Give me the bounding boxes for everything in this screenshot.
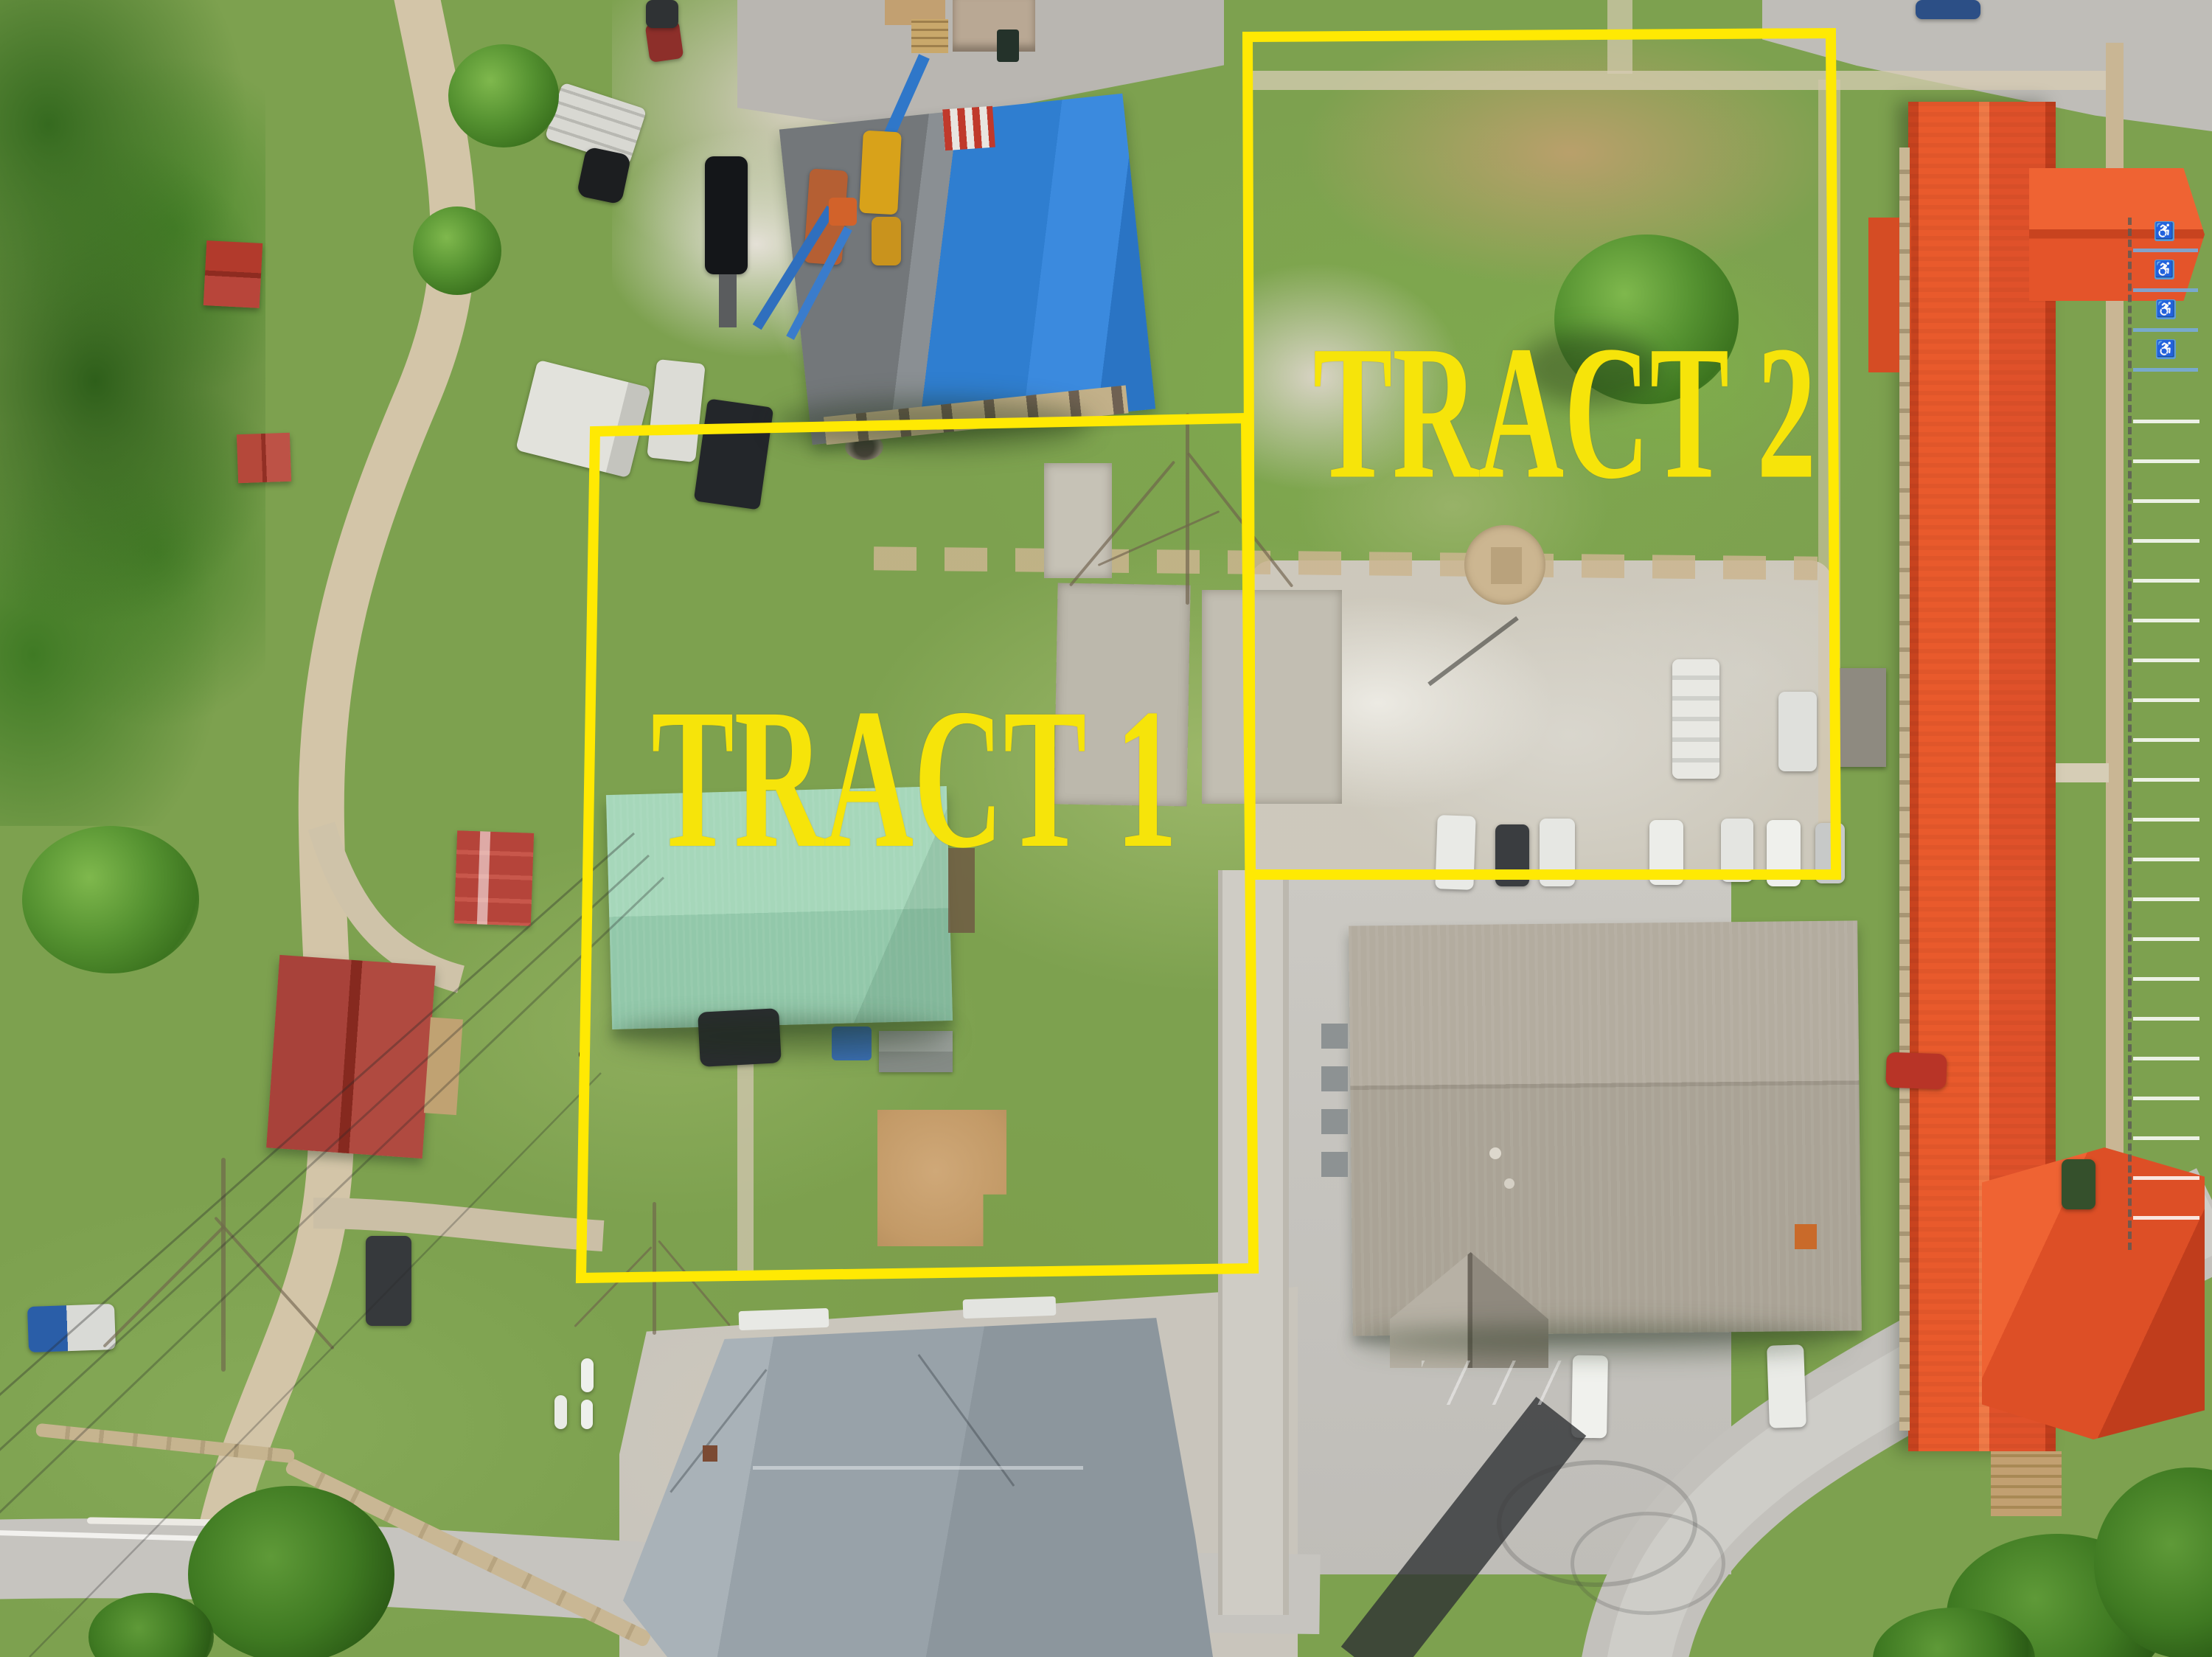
aerial-photo: ♿ ♿ ♿ ♿ bbox=[0, 0, 2212, 1657]
tract2-label: TRACT 2 bbox=[1313, 303, 1816, 524]
tract1-label: TRACT 1 bbox=[651, 663, 1178, 894]
